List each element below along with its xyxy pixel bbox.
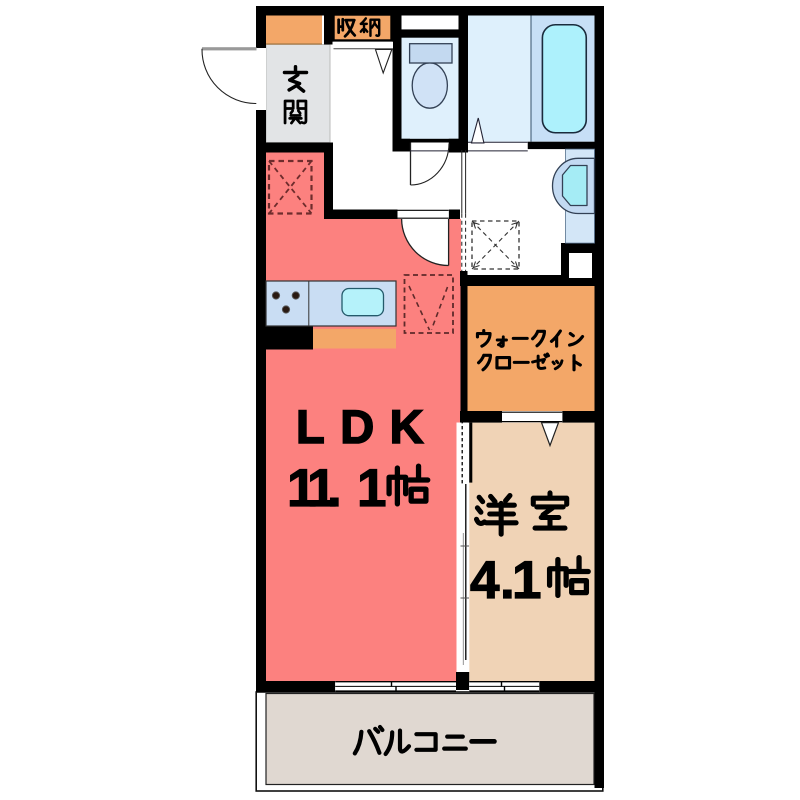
svg-text:4: 4 (470, 551, 500, 610)
svg-text:1: 1 (357, 459, 386, 518)
svg-text:.: . (327, 459, 342, 518)
svg-text:1: 1 (512, 551, 541, 610)
svg-text:LDK: LDK (296, 400, 439, 453)
